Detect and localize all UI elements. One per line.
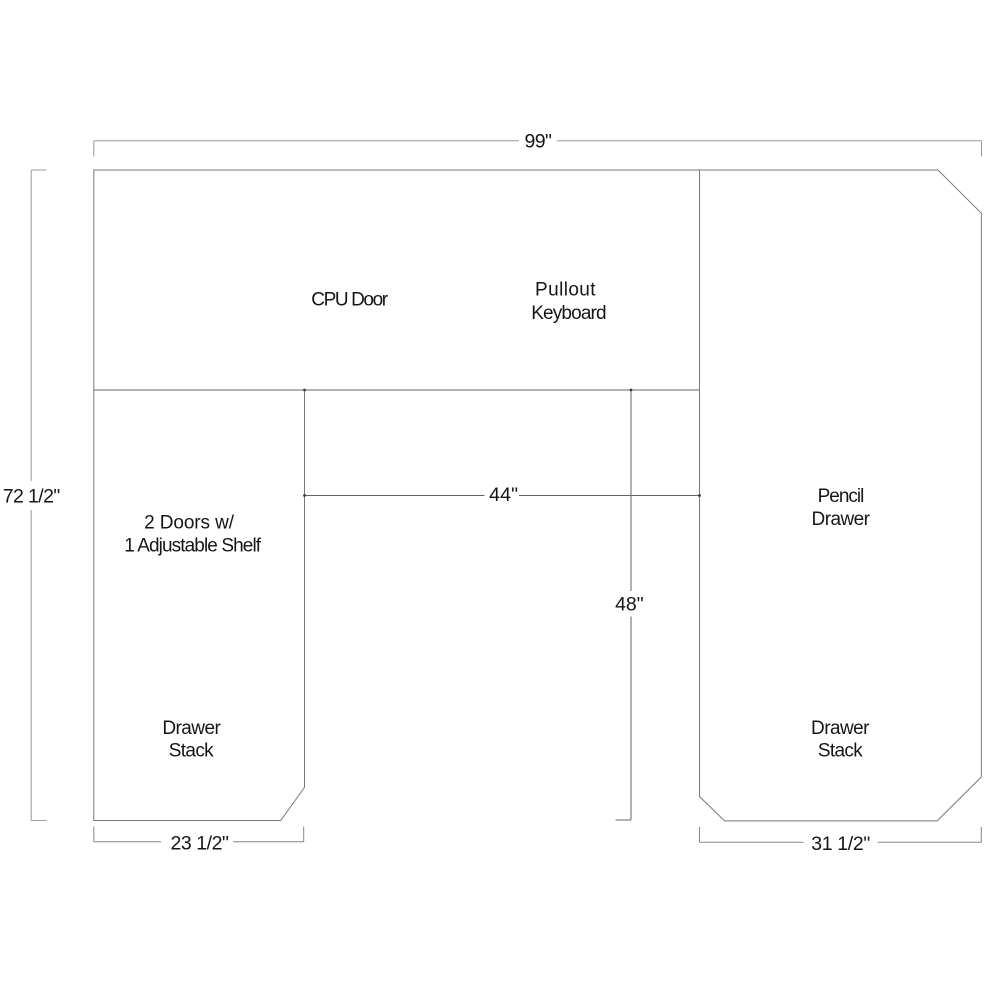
- svg-text:Pullout: Pullout: [535, 280, 596, 301]
- svg-text:Drawer: Drawer: [811, 718, 870, 739]
- svg-text:99": 99": [524, 131, 551, 153]
- svg-text:CPU Door: CPU Door: [311, 290, 388, 311]
- svg-text:Pencil: Pencil: [818, 486, 864, 507]
- svg-text:1 Adjustable Shelf: 1 Adjustable Shelf: [124, 536, 262, 557]
- svg-text:31 1/2": 31 1/2": [811, 833, 870, 855]
- svg-text:Drawer: Drawer: [812, 509, 871, 530]
- svg-text:Keyboard: Keyboard: [531, 303, 606, 324]
- svg-text:44": 44": [489, 484, 518, 506]
- svg-text:Stack: Stack: [169, 740, 214, 761]
- svg-text:72 1/2": 72 1/2": [3, 486, 61, 508]
- svg-text:23 1/2": 23 1/2": [171, 833, 230, 855]
- svg-text:Drawer: Drawer: [162, 718, 221, 739]
- svg-text:Stack: Stack: [818, 740, 863, 761]
- svg-text:48": 48": [615, 594, 644, 616]
- svg-text:2 Doors w/: 2 Doors w/: [144, 513, 235, 534]
